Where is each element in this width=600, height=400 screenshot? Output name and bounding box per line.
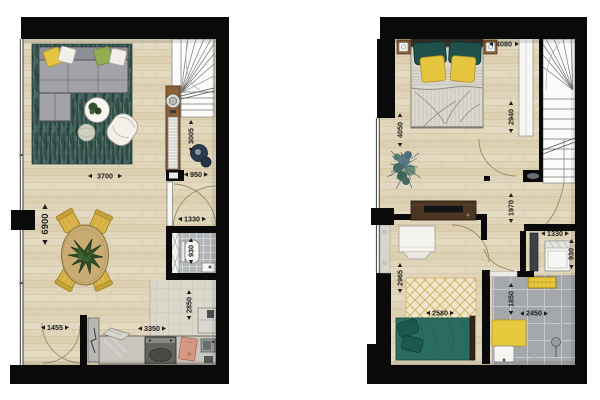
svg-text:4080: 4080 bbox=[496, 39, 512, 48]
svg-text:2450: 2450 bbox=[526, 309, 542, 318]
svg-text:2850: 2850 bbox=[184, 297, 193, 313]
svg-text:2940: 2940 bbox=[506, 109, 515, 125]
svg-text:1970: 1970 bbox=[506, 200, 515, 216]
svg-text:4050: 4050 bbox=[395, 122, 404, 138]
svg-text:930: 930 bbox=[567, 248, 576, 260]
svg-text:3350: 3350 bbox=[144, 324, 160, 333]
svg-text:1850: 1850 bbox=[506, 291, 515, 307]
svg-text:1455: 1455 bbox=[47, 323, 63, 332]
svg-text:2580: 2580 bbox=[432, 308, 448, 317]
svg-text:1330: 1330 bbox=[184, 214, 200, 223]
svg-text:950: 950 bbox=[190, 170, 202, 179]
svg-text:930: 930 bbox=[186, 245, 195, 257]
svg-text:3700: 3700 bbox=[97, 171, 113, 180]
svg-text:6900: 6900 bbox=[40, 213, 51, 234]
svg-text:3005: 3005 bbox=[186, 128, 195, 144]
svg-text:1330: 1330 bbox=[547, 229, 563, 238]
svg-text:2965: 2965 bbox=[395, 270, 404, 286]
